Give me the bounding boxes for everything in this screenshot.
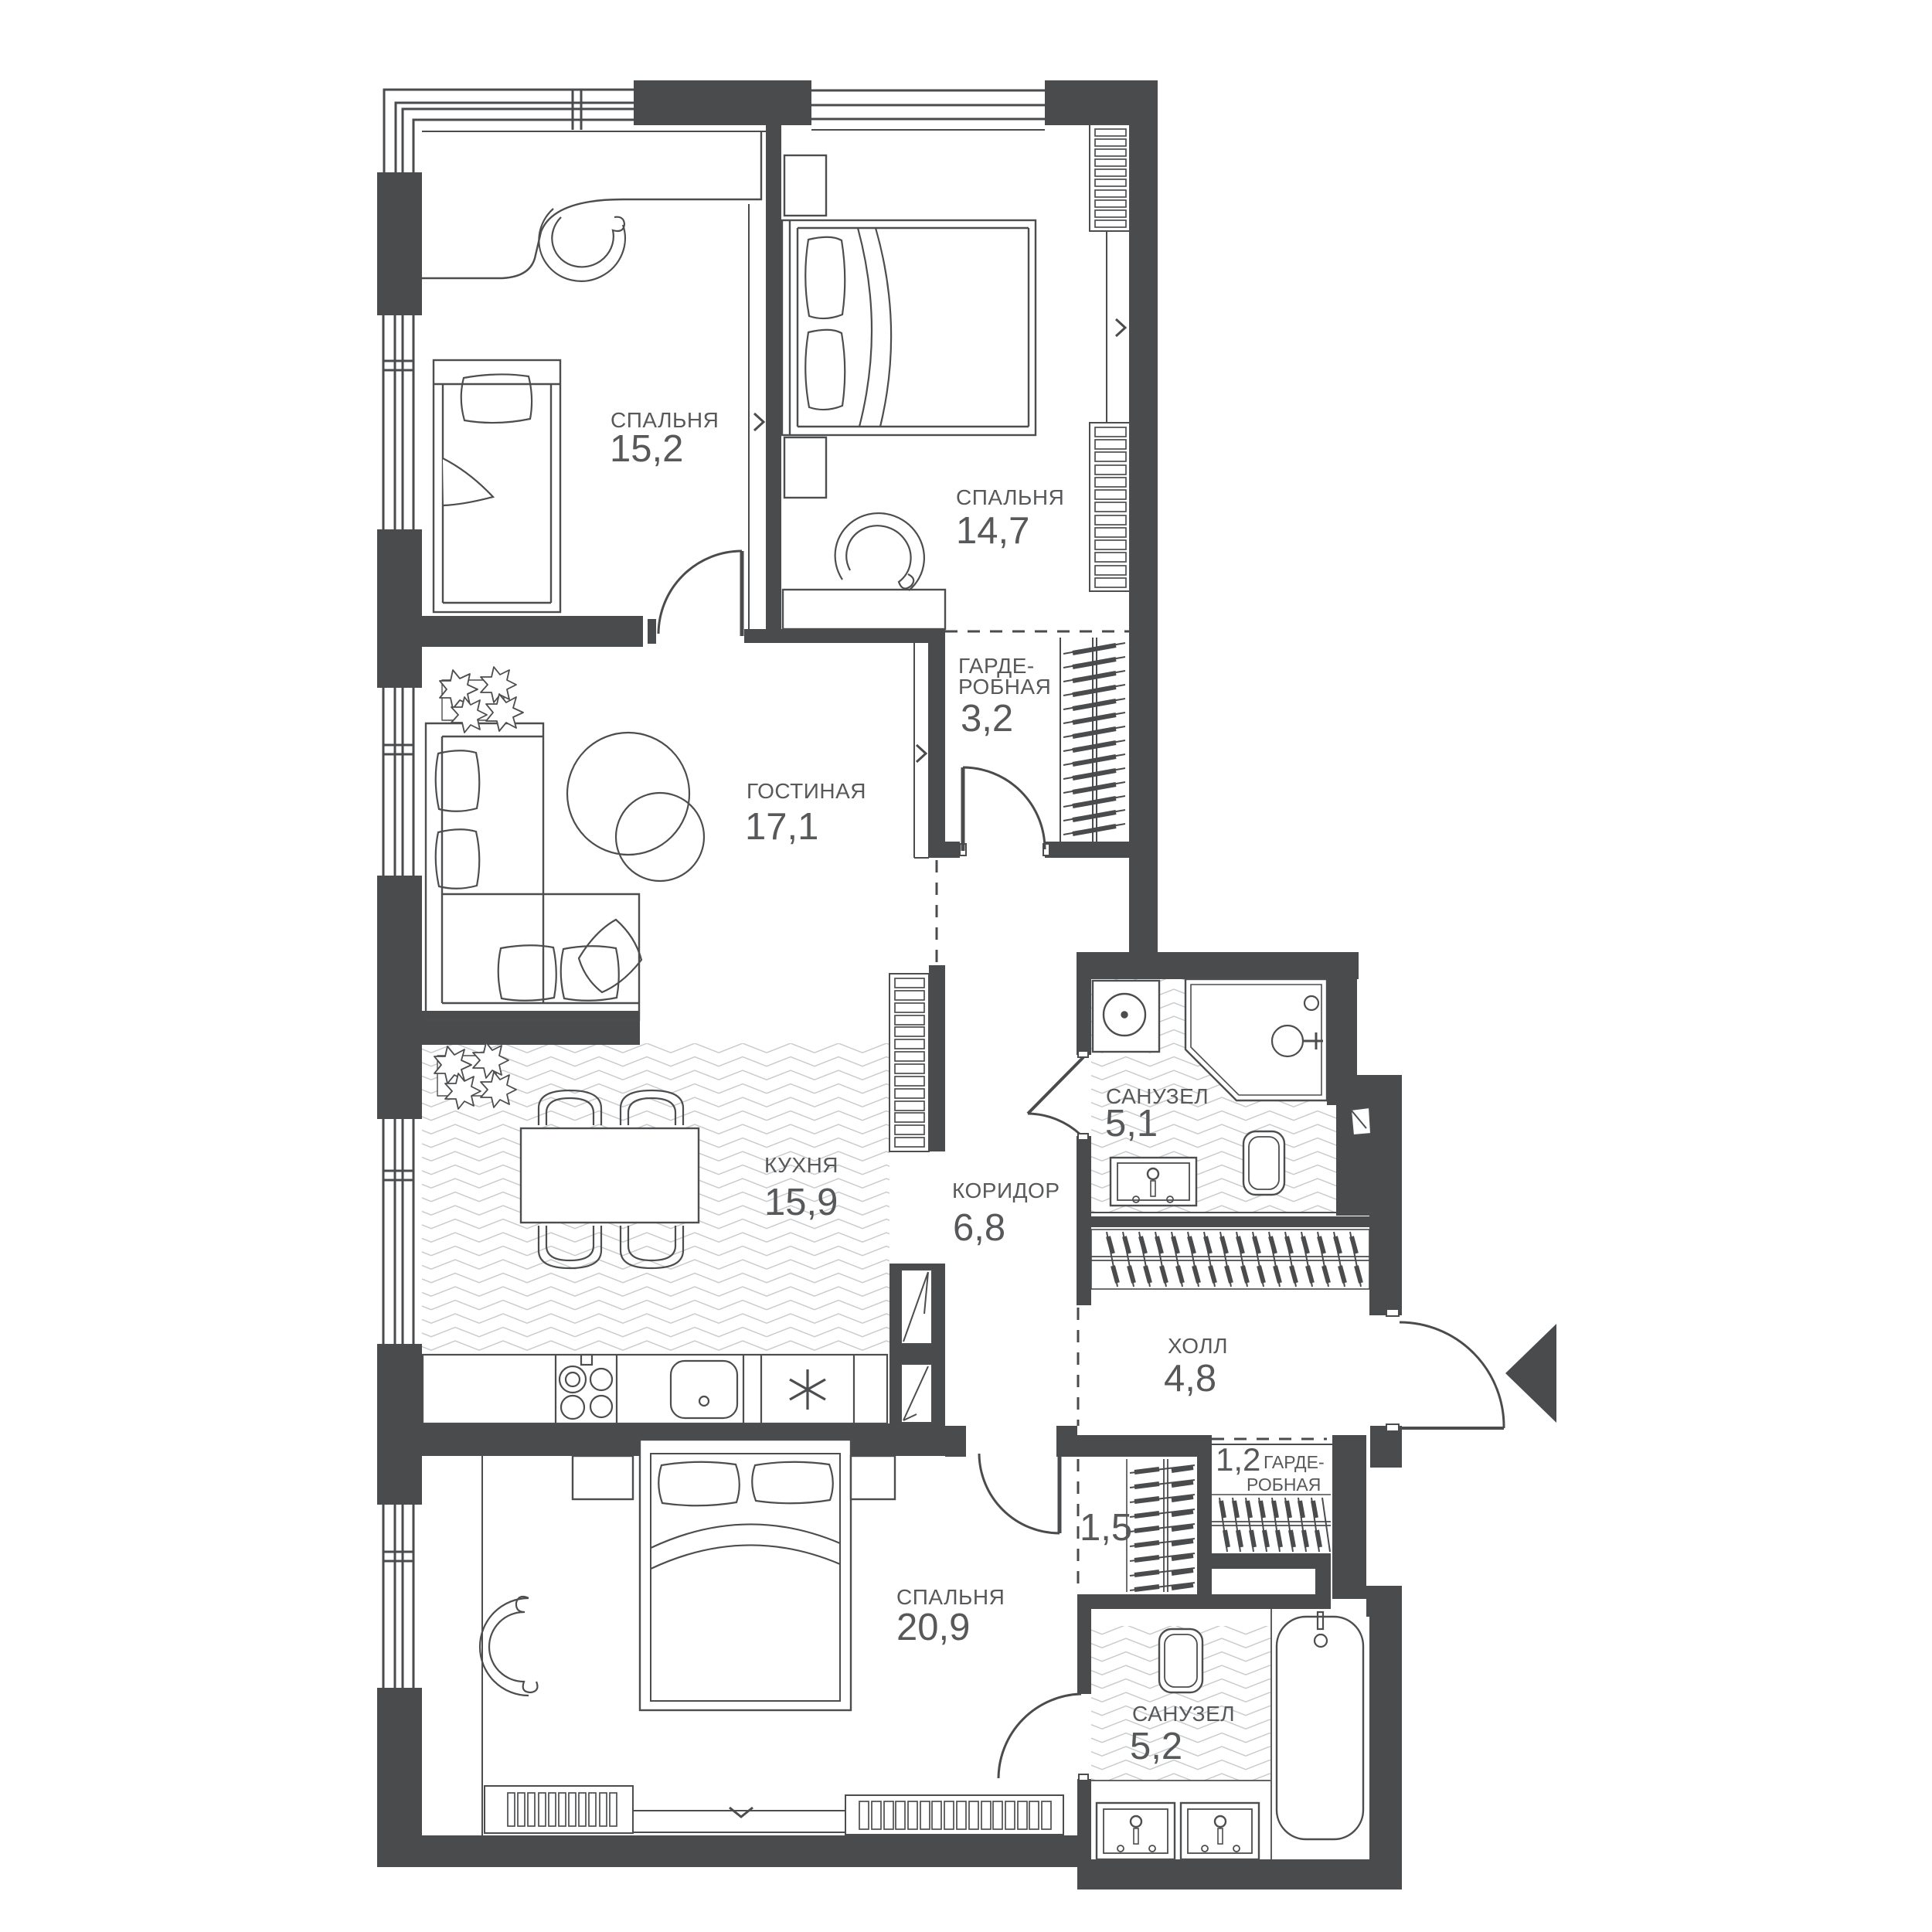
svg-text:ХОЛЛ: ХОЛЛ: [1168, 1334, 1228, 1358]
svg-text:РОБНАЯ: РОБНАЯ: [958, 675, 1051, 699]
svg-text:1,2: 1,2: [1216, 1441, 1260, 1478]
svg-text:15,9: 15,9: [764, 1182, 838, 1223]
svg-text:СПАЛЬНЯ: СПАЛЬНЯ: [896, 1585, 1005, 1609]
svg-text:5,1: 5,1: [1105, 1103, 1158, 1145]
svg-text:1,5: 1,5: [1080, 1507, 1132, 1549]
svg-text:15,2: 15,2: [610, 428, 683, 470]
svg-text:ГОСТИНАЯ: ГОСТИНАЯ: [747, 779, 866, 803]
svg-text:ГАРДЕ-: ГАРДЕ-: [1264, 1452, 1325, 1472]
svg-text:КУХНЯ: КУХНЯ: [764, 1153, 838, 1177]
svg-text:РОБНАЯ: РОБНАЯ: [1247, 1475, 1321, 1495]
svg-text:САНУЗЕЛ: САНУЗЕЛ: [1132, 1702, 1235, 1726]
svg-text:4,8: 4,8: [1164, 1358, 1216, 1400]
svg-text:6,8: 6,8: [953, 1207, 1005, 1249]
svg-text:14,7: 14,7: [956, 510, 1029, 552]
svg-text:КОРИДОР: КОРИДОР: [952, 1179, 1060, 1202]
svg-text:3,2: 3,2: [961, 698, 1013, 740]
svg-text:5,2: 5,2: [1130, 1726, 1182, 1767]
svg-text:20,9: 20,9: [896, 1607, 970, 1648]
svg-text:17,1: 17,1: [745, 806, 818, 848]
svg-text:СПАЛЬНЯ: СПАЛЬНЯ: [956, 485, 1064, 509]
